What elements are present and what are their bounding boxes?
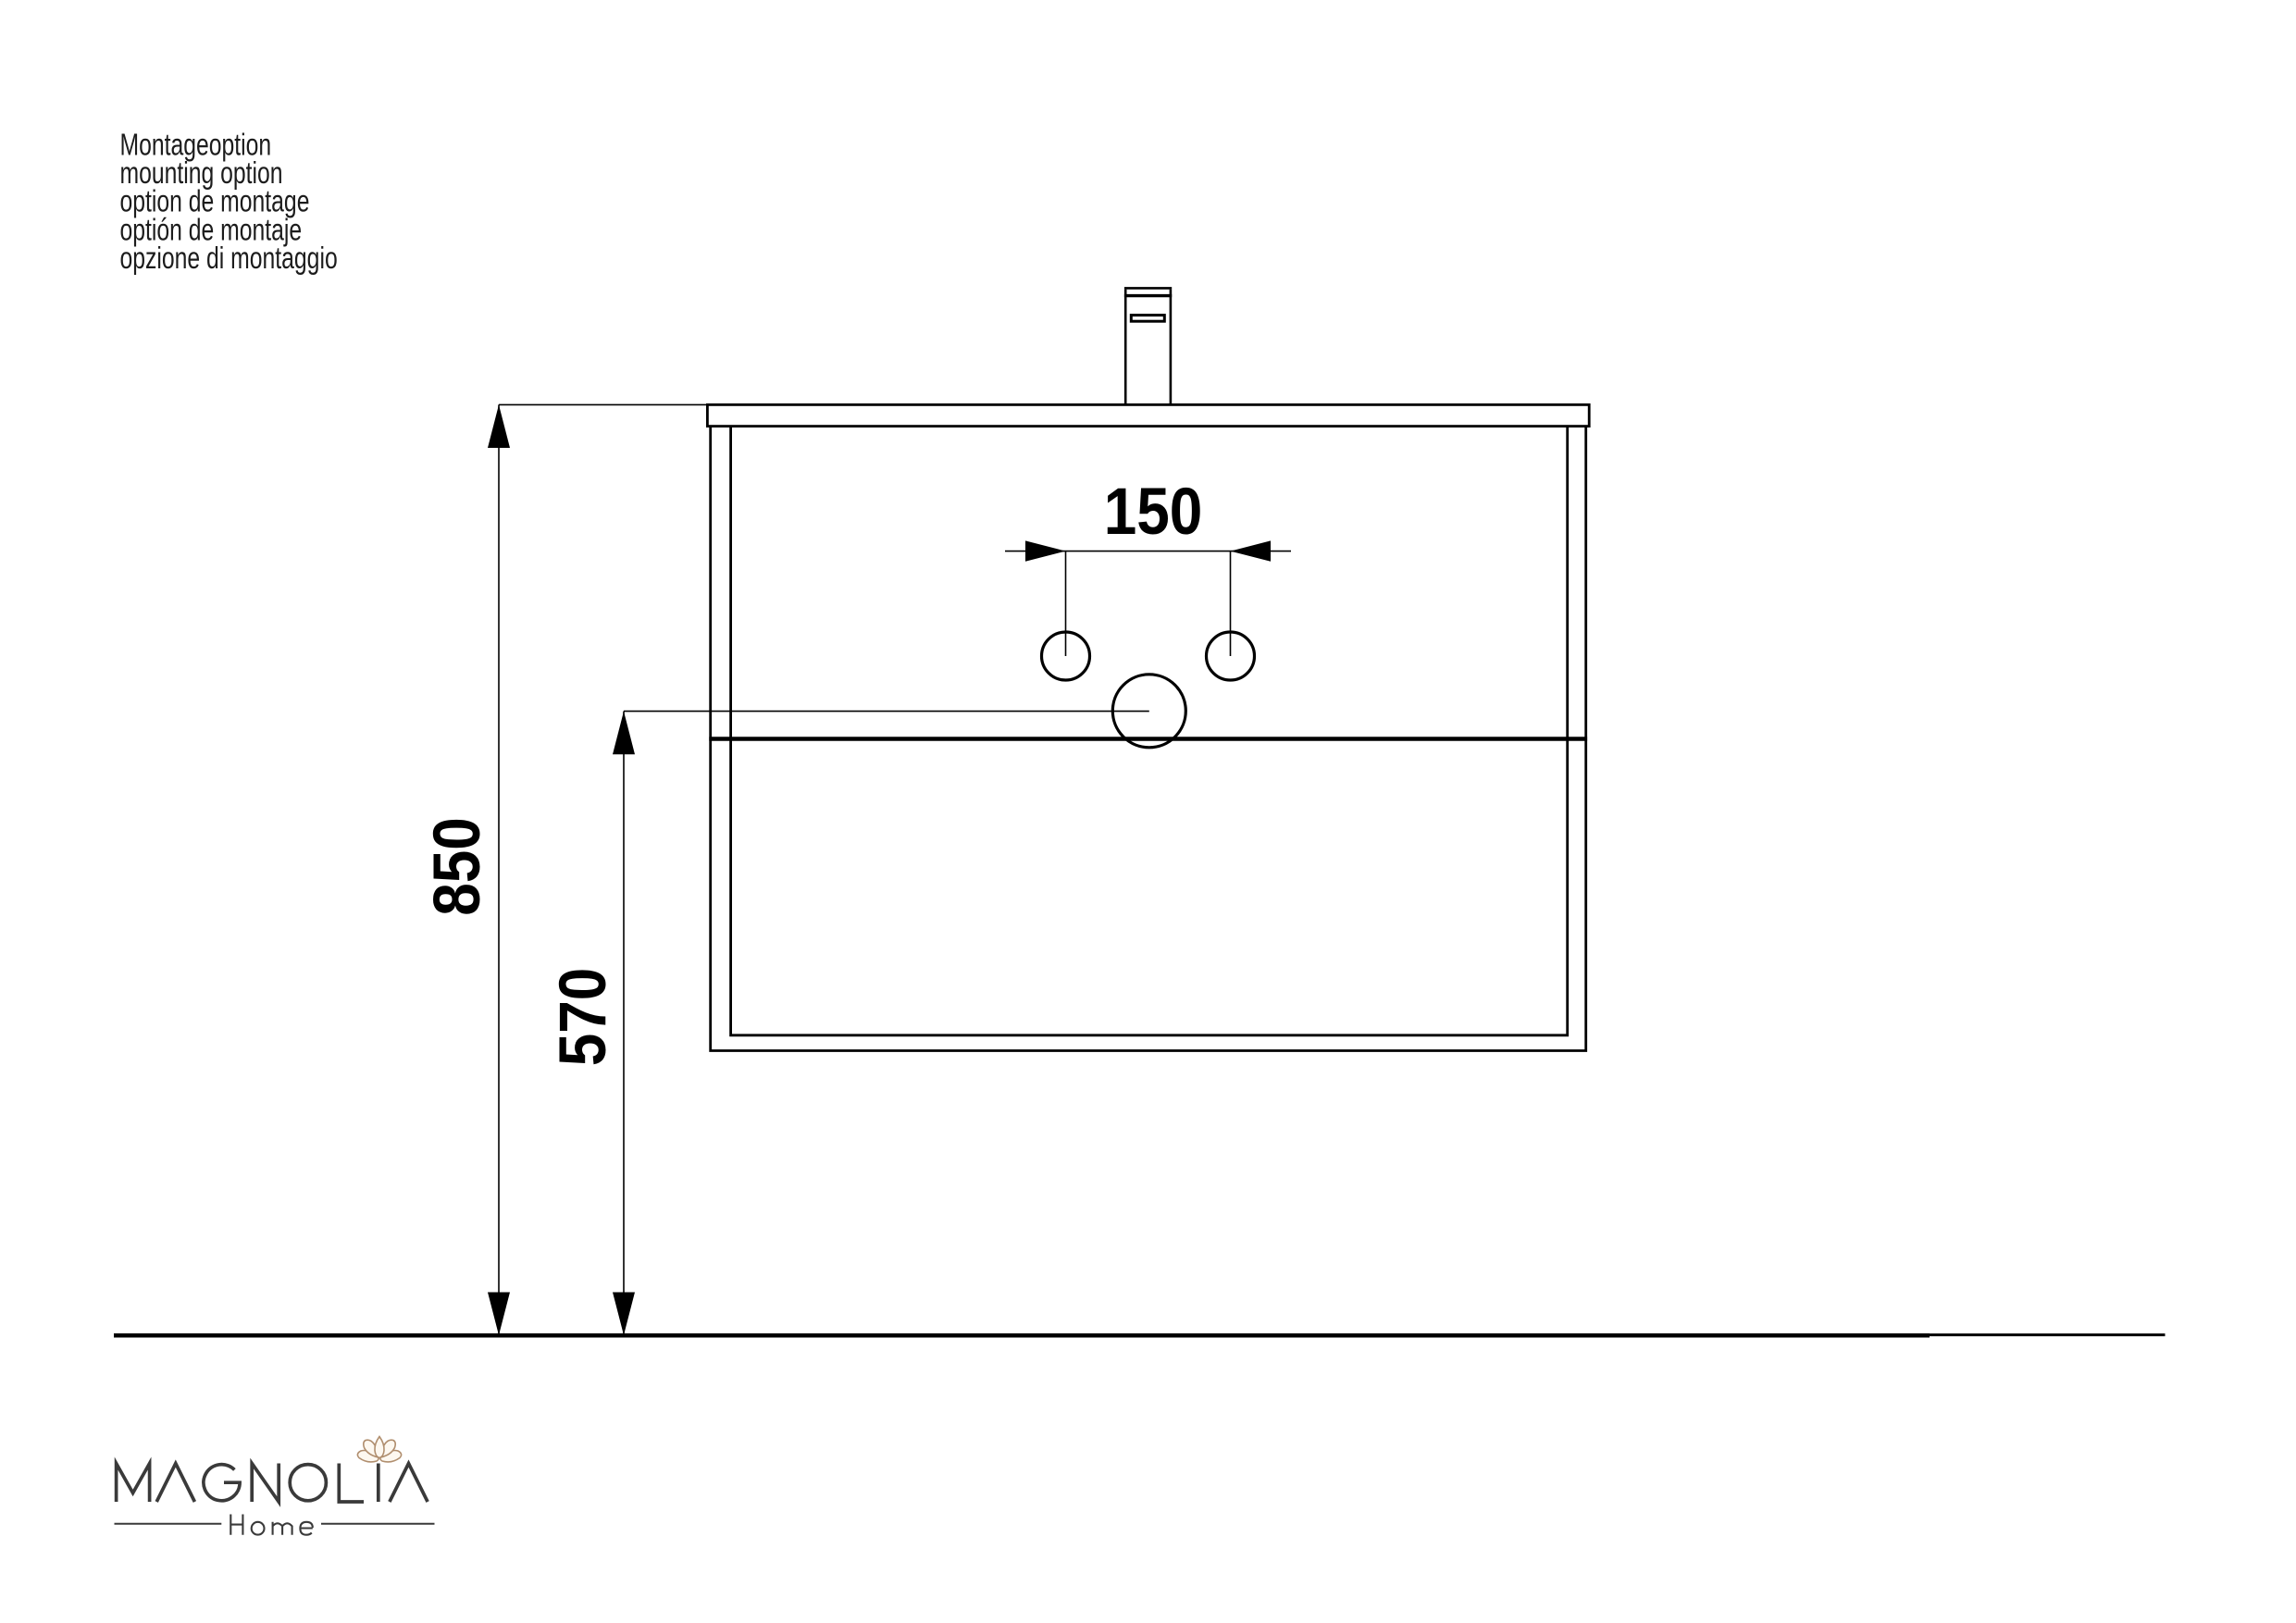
svg-text:570: 570: [547, 968, 620, 1067]
svg-text:150: 150: [1104, 476, 1203, 549]
svg-text:850: 850: [421, 817, 494, 916]
svg-text:opzione di montaggio: opzione di montaggio: [120, 242, 338, 276]
